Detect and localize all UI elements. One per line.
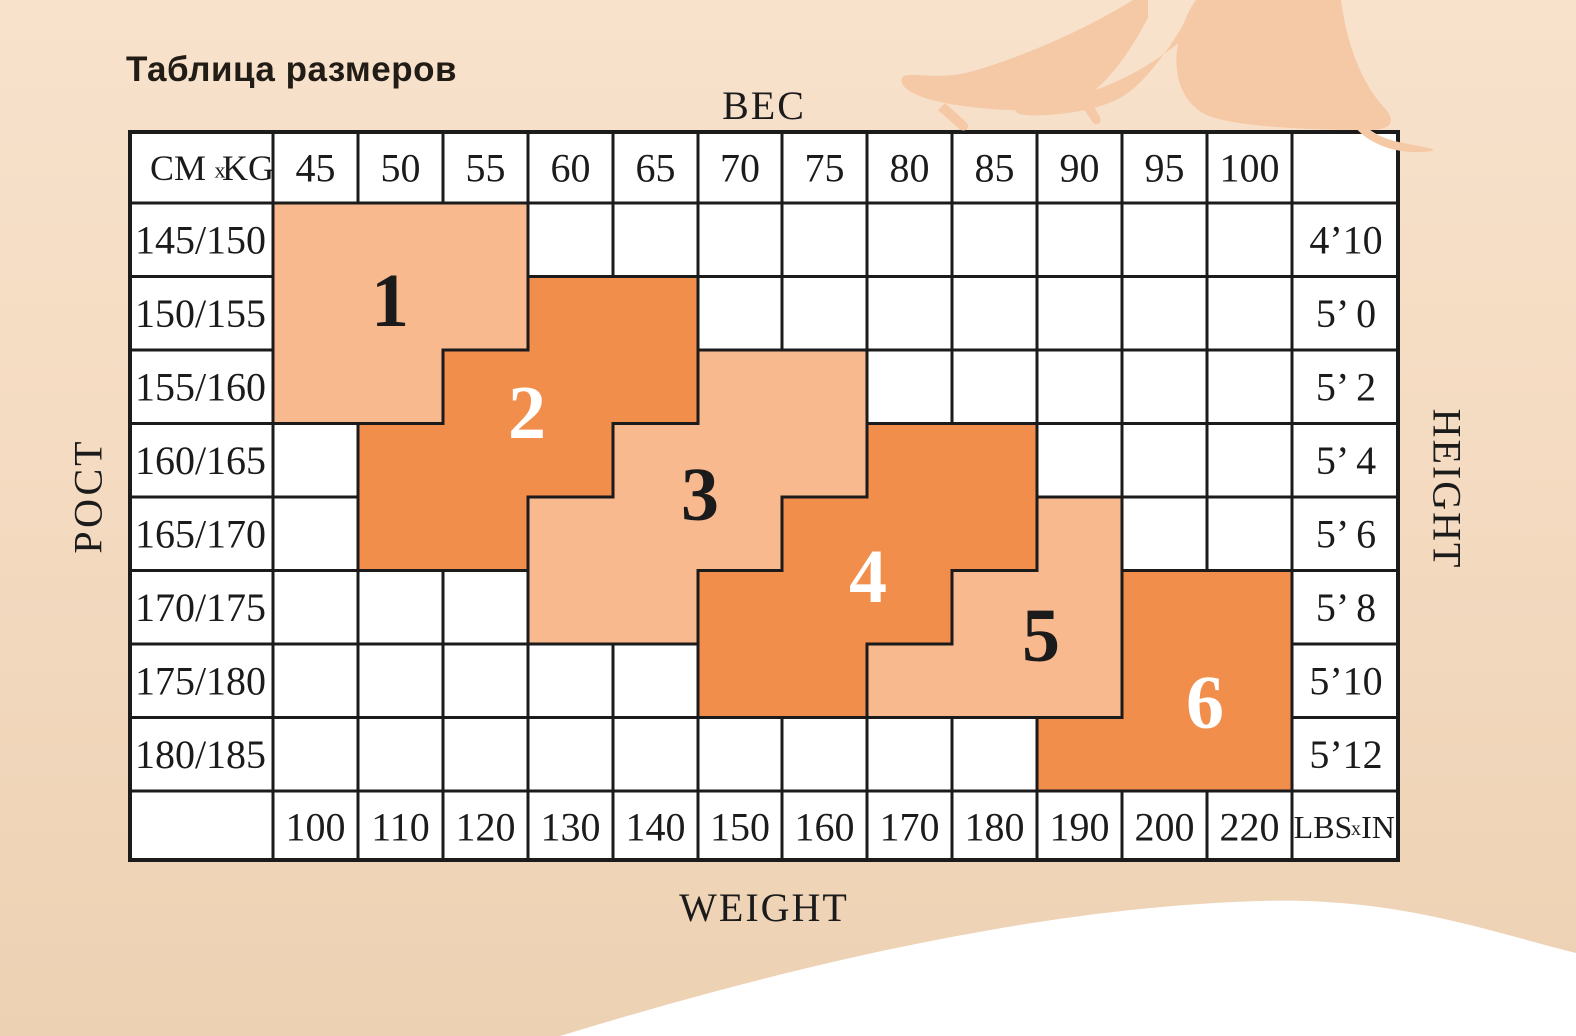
lbs-footer: 100 [286,805,346,850]
cm-row-label: 170/175 [135,585,266,630]
cm-row-label: 175/180 [135,659,266,704]
woman-silhouette-shape [902,0,1434,152]
kg-header: 70 [720,146,760,191]
cm-row-label: 180/185 [135,732,266,777]
lbs-footer: 170 [880,805,940,850]
lbs-footer: 130 [541,805,601,850]
inch-row-label: 5’10 [1309,659,1382,704]
kg-header: 75 [805,146,845,191]
inch-row-label: 5’ 4 [1316,438,1376,483]
kg-header: 50 [381,146,421,191]
cm-row-label: 165/170 [135,512,266,557]
size-4-label: 4 [849,535,887,619]
size-chart-poster: Таблица размеров ВЕС WEIGHT РОСТ HEIGHT … [0,0,1576,1036]
inch-row-label: 5’ 6 [1316,512,1376,557]
kg-header: 55 [466,146,506,191]
size-1-label: 1 [371,259,409,343]
inch-row-label: 5’ 0 [1316,291,1376,336]
kg-header: 45 [296,146,336,191]
woman-silhouette-decoration [850,0,1476,160]
unit-metric-cm: CM [150,148,206,188]
lbs-footer: 180 [965,805,1025,850]
inch-row-label: 4’10 [1309,218,1382,263]
inch-row-label: 5’12 [1309,732,1382,777]
axis-label-rost: РОСТ [65,438,112,553]
cm-row-label: 145/150 [135,218,266,263]
size-5-label: 5 [1022,594,1060,678]
kg-header: 60 [551,146,591,191]
unit-imperial-lbs: LBS [1294,809,1353,845]
cm-row-label: 160/165 [135,438,266,483]
axis-label-height: HEIGHT [1424,409,1471,570]
size-6-label: 6 [1186,661,1224,745]
size-3-label: 3 [681,453,719,537]
lbs-footer: 200 [1135,805,1195,850]
cm-row-label: 155/160 [135,365,266,410]
lbs-footer: 220 [1220,805,1280,850]
inch-row-label: 5’ 2 [1316,365,1376,410]
lbs-footer: 190 [1050,805,1110,850]
size-table: 1 2 3 4 5 6 CM x KG 45 50 55 60 65 70 75… [128,130,1400,862]
size-2-label: 2 [508,371,546,455]
cm-row-label: 150/155 [135,291,266,336]
lbs-footer: 120 [456,805,516,850]
lbs-footer: 110 [371,805,430,850]
lbs-footer: 160 [795,805,855,850]
lbs-footer: 150 [710,805,770,850]
unit-imperial-in: IN [1361,809,1395,845]
unit-imperial-x: x [1351,818,1361,840]
unit-metric-kg: KG [222,148,274,188]
lbs-footer: 140 [626,805,686,850]
axis-label-weight: WEIGHT [128,884,1400,931]
kg-header: 65 [636,146,676,191]
inch-row-label: 5’ 8 [1316,585,1376,630]
